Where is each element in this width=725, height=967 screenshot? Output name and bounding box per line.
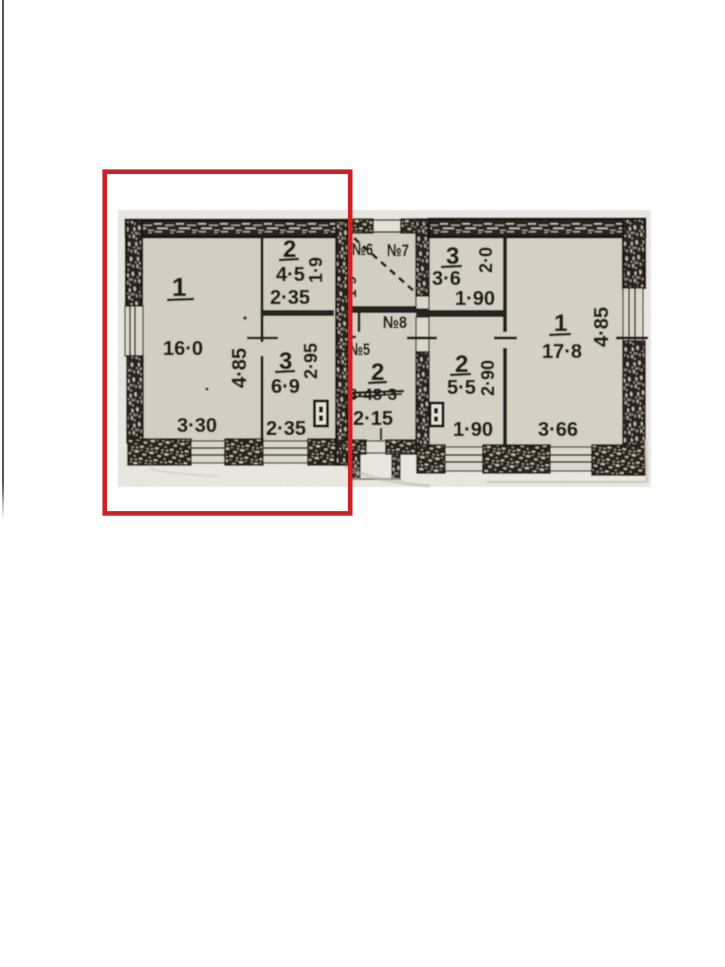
svg-text:4·85: 4·85 (229, 348, 251, 388)
svg-text:1: 1 (554, 310, 567, 337)
svg-text:5·5: 5·5 (447, 377, 476, 399)
svg-text:2·35: 2·35 (270, 287, 310, 309)
svg-text:2·15: 2·15 (353, 408, 393, 430)
svg-text:2·90: 2·90 (478, 360, 498, 396)
svg-text:2·0: 2·0 (476, 247, 496, 273)
svg-text:№7: №7 (387, 241, 409, 260)
svg-text:4·5: 4·5 (276, 264, 305, 286)
svg-text:3·30: 3·30 (177, 415, 217, 437)
svg-text:1: 1 (172, 272, 186, 302)
svg-text:16·0: 16·0 (163, 338, 203, 360)
svg-text:3·66: 3·66 (538, 419, 578, 441)
svg-text:4·85: 4·85 (591, 307, 613, 347)
svg-text:2·95: 2·95 (301, 343, 321, 379)
svg-text:17·8: 17·8 (542, 341, 582, 363)
svg-text:6·9: 6·9 (271, 376, 300, 398)
svg-text:3·6: 3·6 (432, 268, 461, 290)
svg-text:1·90: 1·90 (453, 419, 493, 441)
svg-text:1·9: 1·9 (306, 257, 326, 283)
svg-text:1·90: 1·90 (455, 288, 495, 310)
svg-text:№6: №6 (352, 240, 373, 259)
svg-text:2·35: 2·35 (266, 418, 306, 440)
svg-text:№8: №8 (383, 313, 407, 332)
